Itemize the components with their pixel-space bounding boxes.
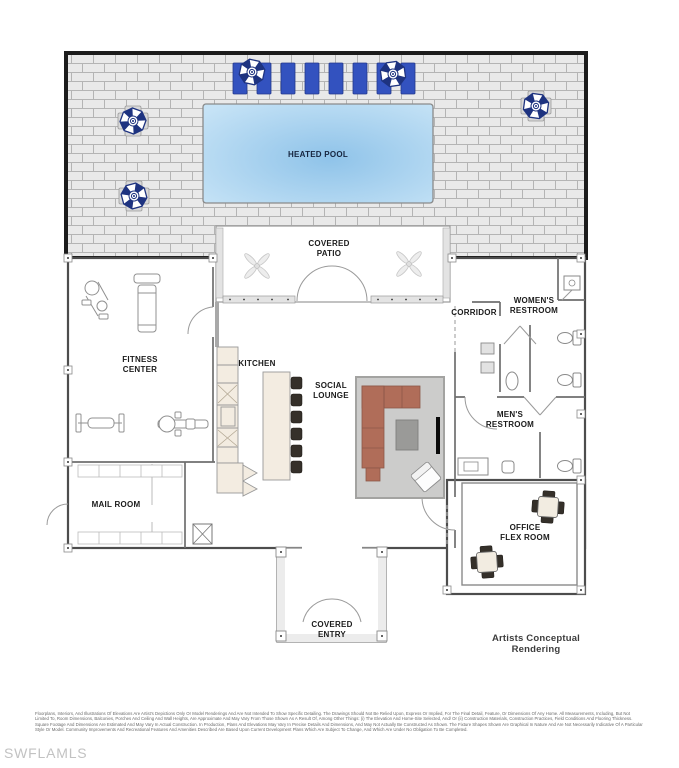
rendering-note: Artists Conceptual Rendering	[470, 633, 602, 655]
watermark: SWFLAMLS	[4, 745, 87, 761]
sink	[481, 343, 494, 354]
equipment-closet	[193, 524, 212, 544]
room-label-covered-patio: COVERED PATIO	[293, 239, 365, 258]
room-label-mail-room: MAIL ROOM	[76, 500, 156, 510]
sink	[481, 362, 494, 373]
floor-plan-page: HEATED POOL COVERED PATIO FITNESS CENTER…	[0, 0, 679, 768]
treadmill	[134, 274, 160, 332]
urinal	[502, 461, 514, 473]
room-label-fitness-center: FITNESS CENTER	[100, 355, 180, 374]
coffee-table	[396, 420, 418, 450]
room-label-social-lounge: SOCIAL LOUNGE	[300, 381, 362, 400]
room-label-heated-pool: HEATED POOL	[258, 150, 378, 160]
toilet	[558, 373, 582, 387]
room-label-womens-restroom: WOMEN'S RESTROOM	[493, 296, 575, 315]
covered-patio	[216, 226, 450, 303]
room-label-mens-restroom: MEN'S RESTROOM	[470, 410, 550, 429]
room-label-covered-entry: COVERED ENTRY	[296, 620, 368, 639]
disclaimer-text: Floorplans, Interiors, And Illustrations…	[35, 711, 645, 733]
toilet	[558, 459, 582, 473]
social-lounge-furniture	[356, 377, 444, 498]
drinking-fountain	[506, 372, 518, 390]
tv	[436, 417, 440, 454]
vanity-counter	[458, 458, 488, 475]
sink	[564, 276, 580, 290]
room-label-kitchen: KITCHEN	[227, 359, 287, 369]
room-label-office-flex-room: OFFICE FLEX ROOM	[485, 523, 565, 542]
